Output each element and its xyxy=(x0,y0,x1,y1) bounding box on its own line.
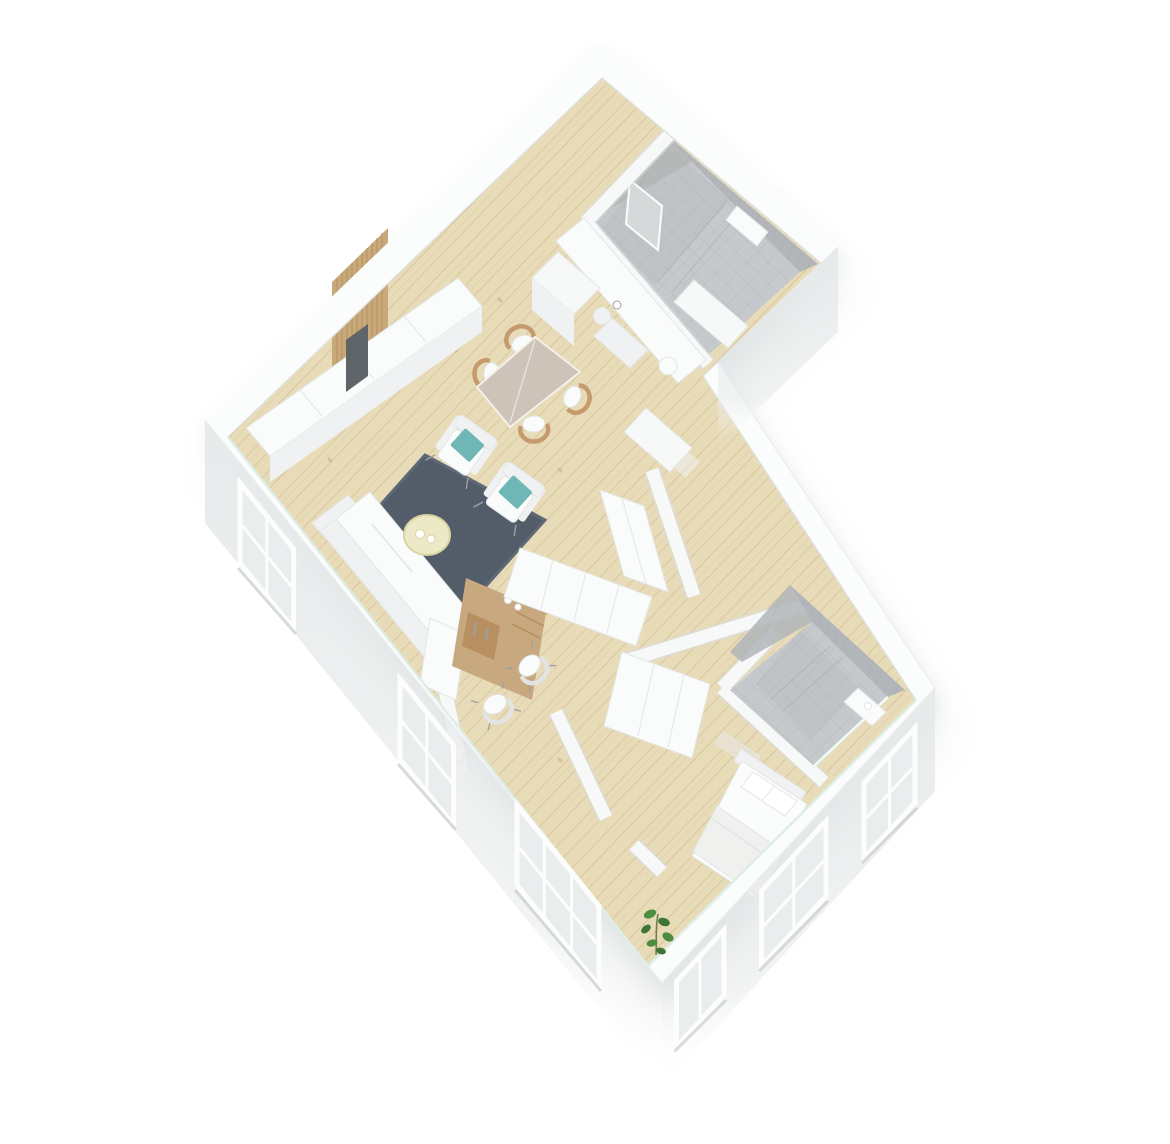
pot xyxy=(659,357,677,375)
round-basin xyxy=(594,308,611,325)
toiletry-bottle xyxy=(865,703,872,710)
coffee-table-top xyxy=(404,515,450,555)
desk-item xyxy=(515,604,521,610)
floor-plan-render: 3D isometric floor-plan render of a one-… xyxy=(0,0,1170,1144)
coffee-table xyxy=(404,515,450,555)
faucet xyxy=(613,301,621,309)
cup xyxy=(427,535,435,543)
cup xyxy=(416,530,425,539)
